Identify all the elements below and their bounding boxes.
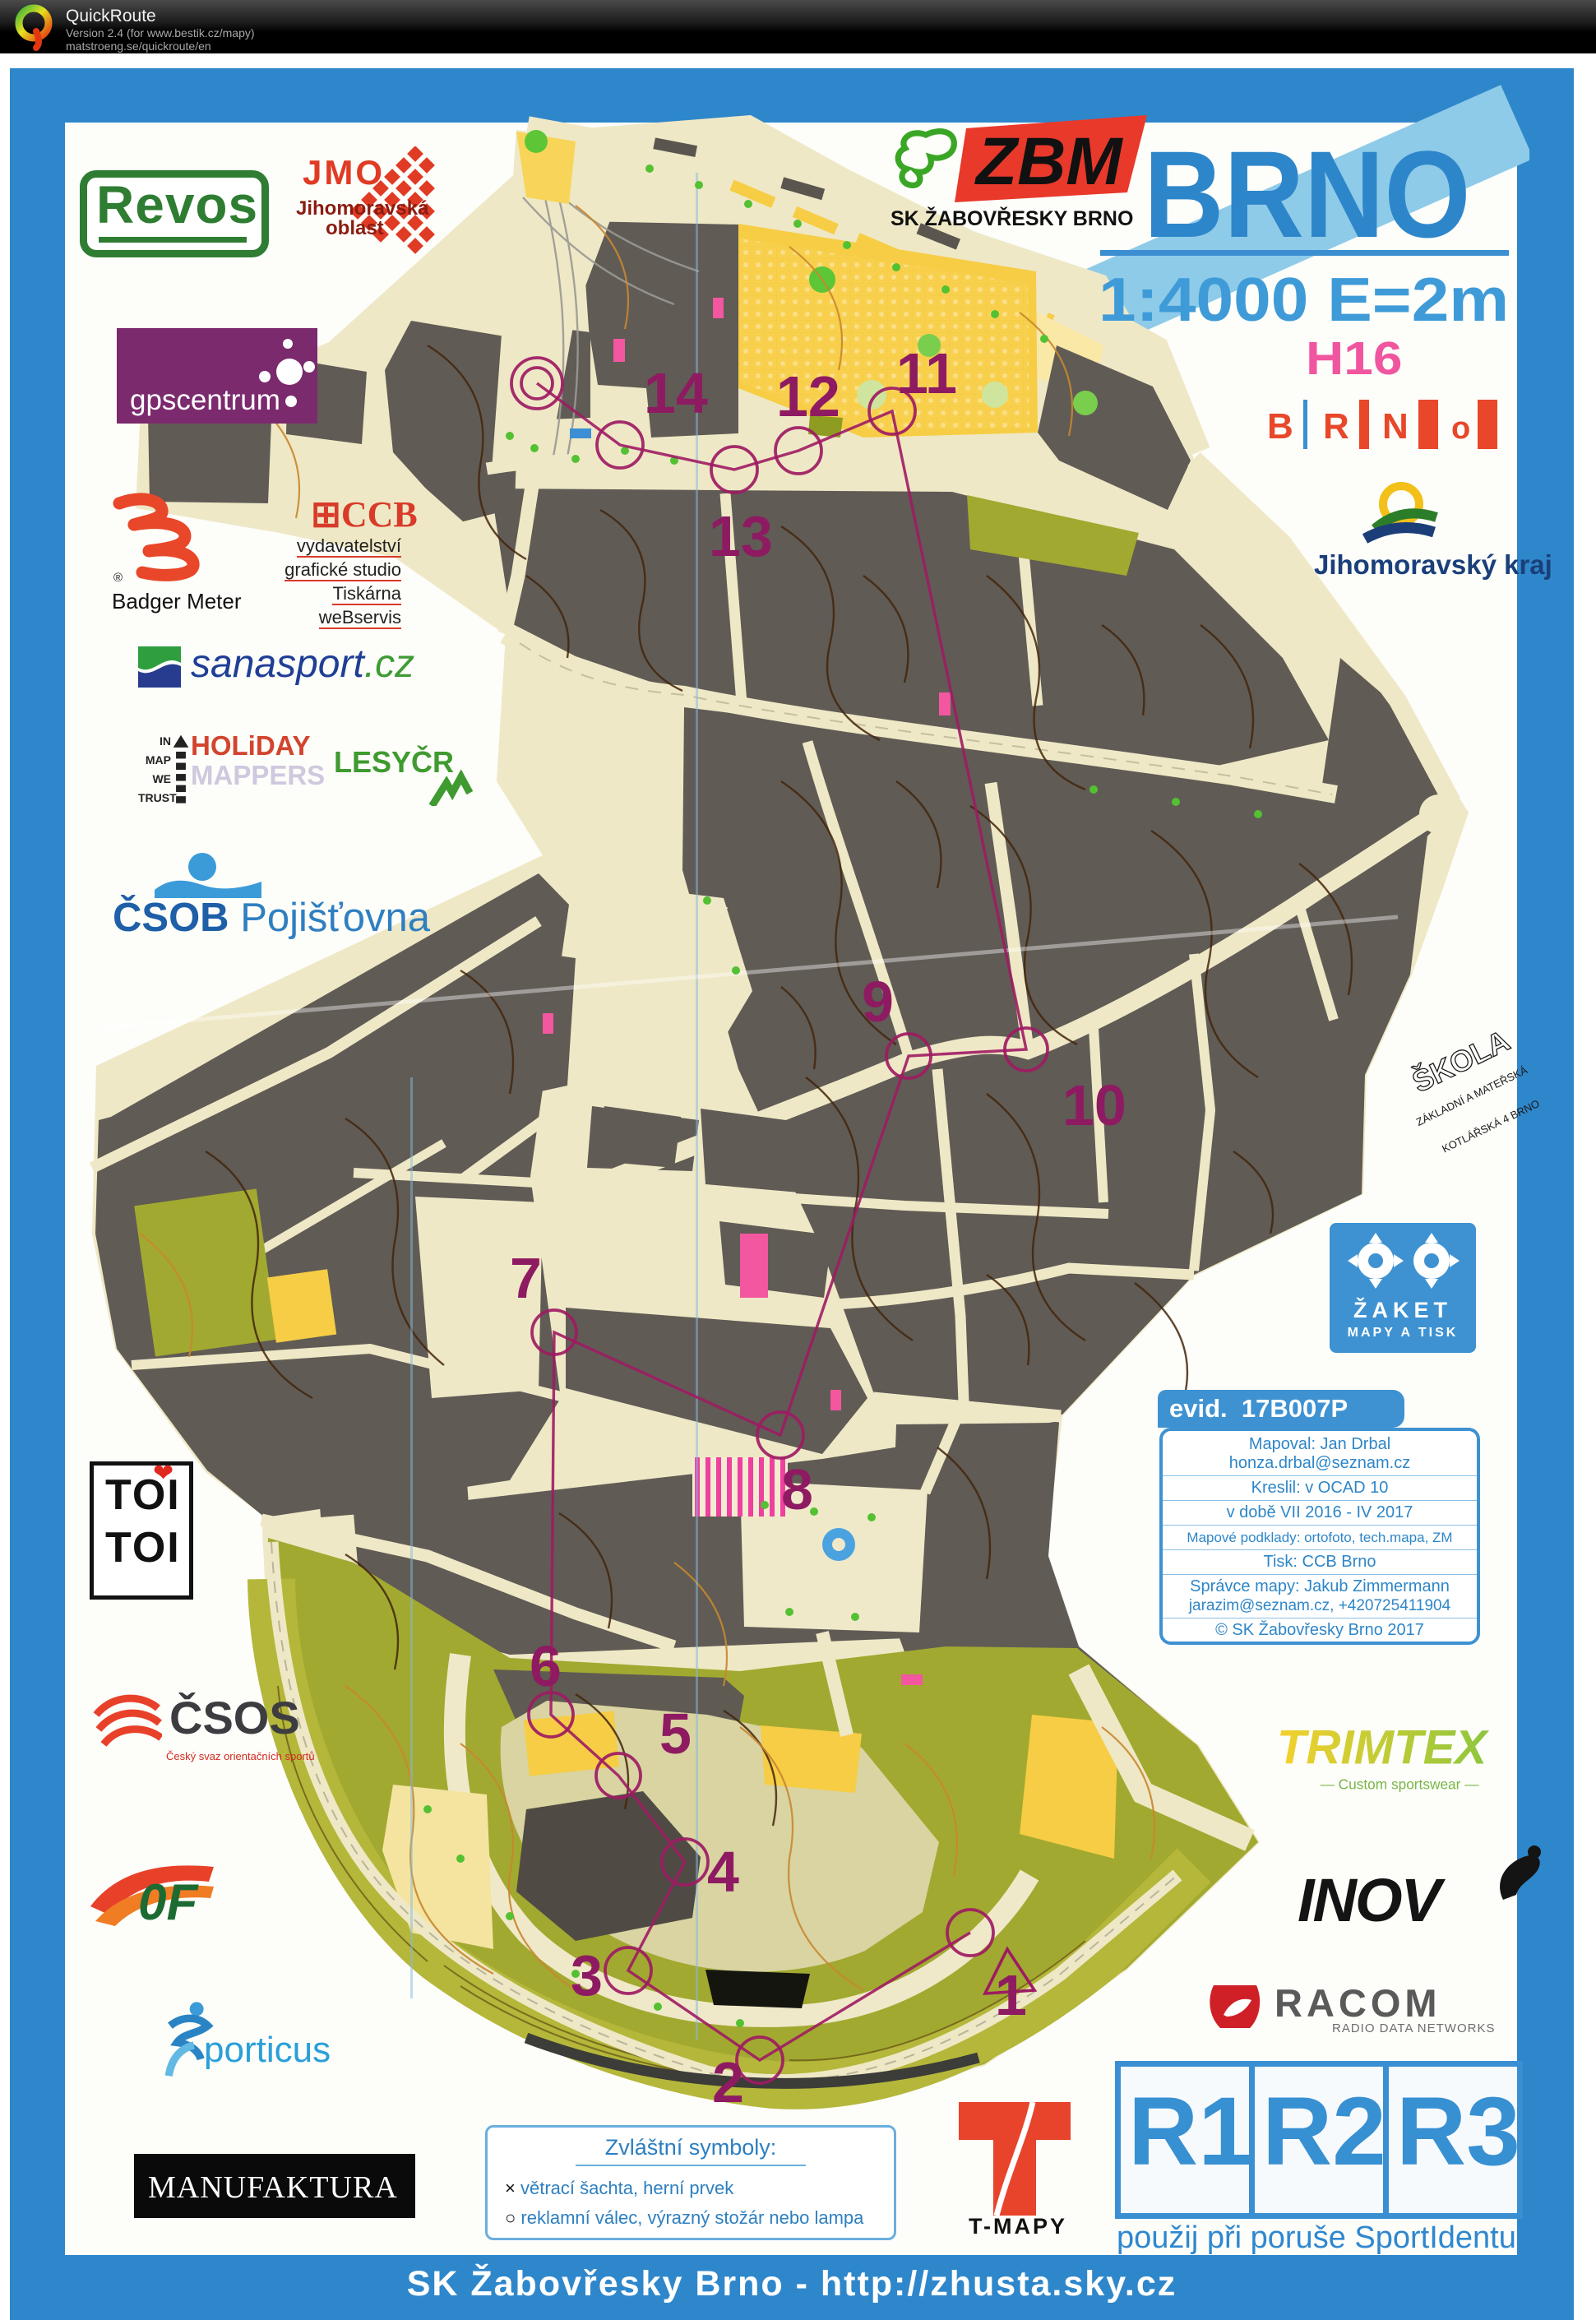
svg-text:14: 14 [644, 361, 708, 425]
svg-text:— Custom sportswear —: — Custom sportswear — [1321, 1776, 1480, 1793]
svg-text:ZBM: ZBM [974, 124, 1123, 199]
svg-text:9: 9 [862, 970, 894, 1034]
svg-text:8: 8 [781, 1457, 813, 1521]
svg-text:5: 5 [659, 1702, 692, 1766]
svg-text:13: 13 [709, 504, 773, 568]
svg-text:1: 1 [995, 1963, 1027, 2027]
svg-text:2: 2 [712, 2050, 744, 2114]
svg-text:TRIMTEX: TRIMTEX [1277, 1721, 1489, 1775]
svg-text:3: 3 [571, 1943, 603, 2007]
svg-text:SK ŽABOVŘESKY BRNO: SK ŽABOVŘESKY BRNO [891, 206, 1133, 230]
svg-text:7: 7 [510, 1246, 542, 1310]
svg-text:11: 11 [896, 341, 957, 405]
svg-text:6: 6 [530, 1634, 562, 1698]
svg-text:0F: 0F [138, 1874, 199, 1927]
svg-text:10: 10 [1062, 1073, 1126, 1137]
svg-text:12: 12 [776, 364, 840, 428]
svg-text:4: 4 [707, 1840, 739, 1904]
